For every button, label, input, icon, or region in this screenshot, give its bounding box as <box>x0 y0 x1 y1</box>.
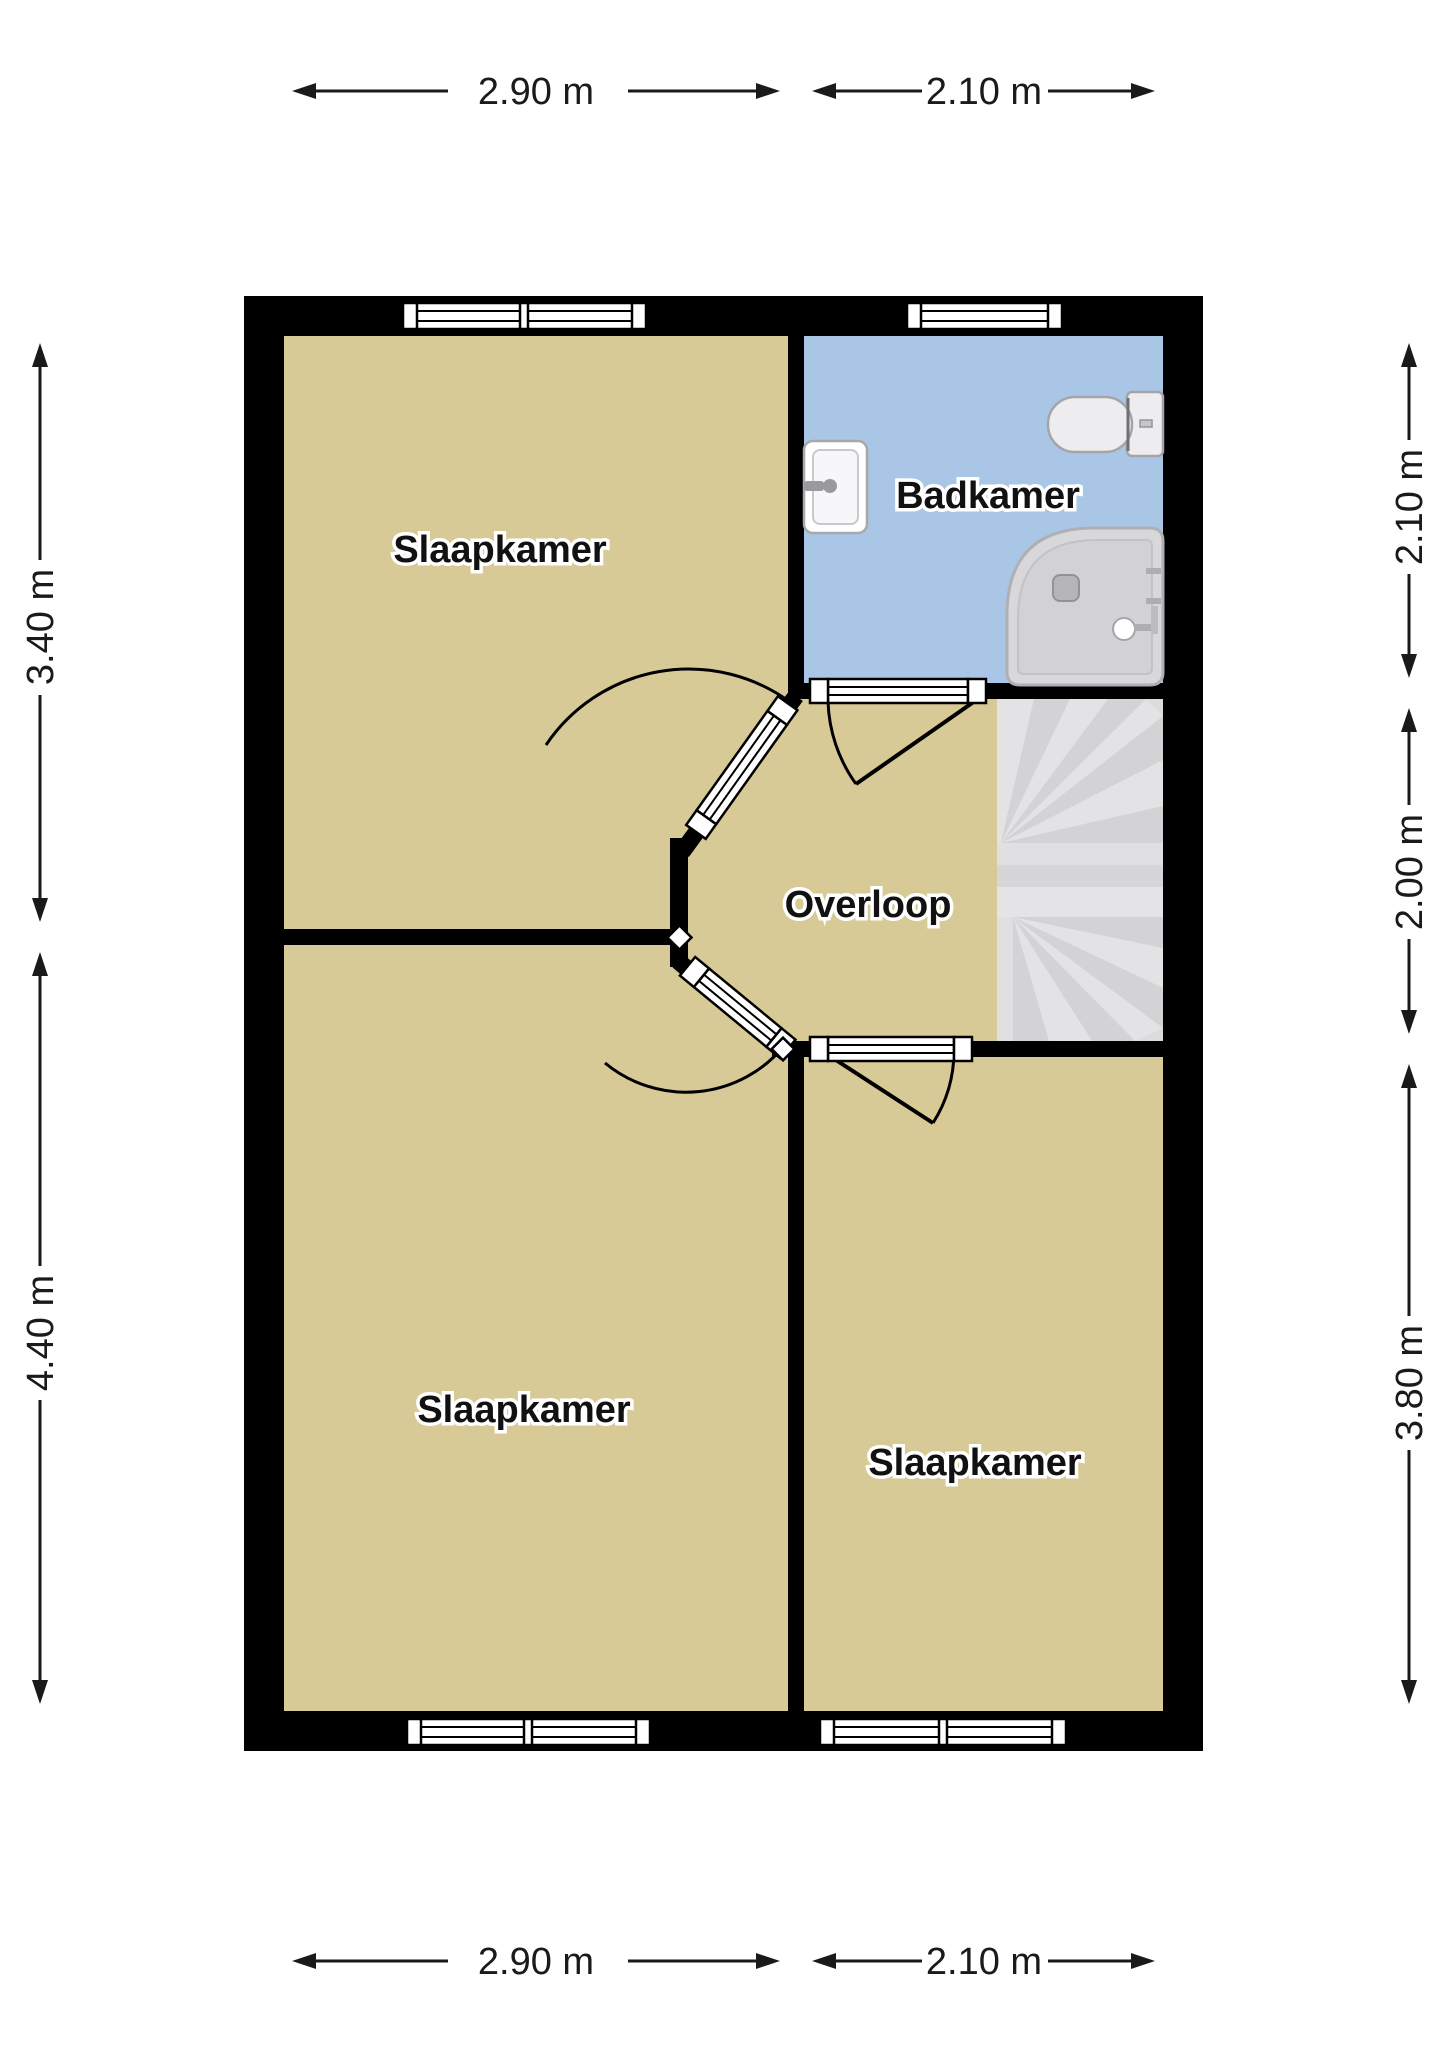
toilet-icon <box>1048 392 1163 456</box>
dimension-right-2: 2.00 m <box>1389 708 1431 1034</box>
room-label-slaapkamer-top: Slaapkamer <box>393 529 607 571</box>
dimension-label: 4.40 m <box>20 1275 62 1391</box>
dimension-label: 2.00 m <box>1389 814 1431 930</box>
dimension-top-2: 2.10 m <box>812 71 1155 113</box>
window-top-left <box>403 303 646 329</box>
dimension-right-1: 2.10 m <box>1389 343 1431 678</box>
dimension-label: 3.80 m <box>1389 1325 1431 1441</box>
dimension-bottom-1: 2.90 m <box>292 1941 780 1983</box>
wall-exterior-left <box>244 296 284 1751</box>
dimension-label: 2.10 m <box>1389 449 1431 565</box>
dimension-bottom-2: 2.10 m <box>812 1941 1155 1983</box>
dimension-label: 2.90 m <box>478 1941 594 1983</box>
room-label-badkamer: Badkamer <box>896 475 1080 517</box>
wall-between-bottom-bedrooms <box>788 1057 804 1711</box>
dimension-top-1: 2.90 m <box>292 71 780 113</box>
dimension-label: 2.10 m <box>926 1941 1042 1983</box>
dimension-left-1: 3.40 m <box>20 343 62 922</box>
shower-icon <box>1007 528 1163 685</box>
floor-plan-canvas: Slaapkamer Badkamer Overloop Slaapkamer … <box>0 0 1448 2048</box>
dimension-label: 2.90 m <box>478 71 594 113</box>
dimension-left-2: 4.40 m <box>20 952 62 1704</box>
dimension-label: 3.40 m <box>20 569 62 685</box>
sink-icon <box>804 441 867 533</box>
floorplan-page: Slaapkamer Badkamer Overloop Slaapkamer … <box>0 0 1448 2048</box>
wall-between-left-bedrooms <box>284 929 688 945</box>
room-label-overloop: Overloop <box>785 884 952 926</box>
wall-bedroom-bathroom <box>788 336 804 699</box>
window-bottom-right <box>820 1719 1066 1745</box>
window-bottom-left <box>407 1719 650 1745</box>
stairs-icon <box>997 699 1163 1041</box>
wall-exterior-right <box>1163 296 1203 1751</box>
room-label-slaapkamer-bottom-right: Slaapkamer <box>868 1442 1082 1484</box>
dimension-right-3: 3.80 m <box>1389 1064 1431 1704</box>
room-label-slaapkamer-bottom-left: Slaapkamer <box>417 1389 631 1431</box>
dimension-label: 2.10 m <box>926 71 1042 113</box>
window-bathroom <box>907 303 1062 329</box>
